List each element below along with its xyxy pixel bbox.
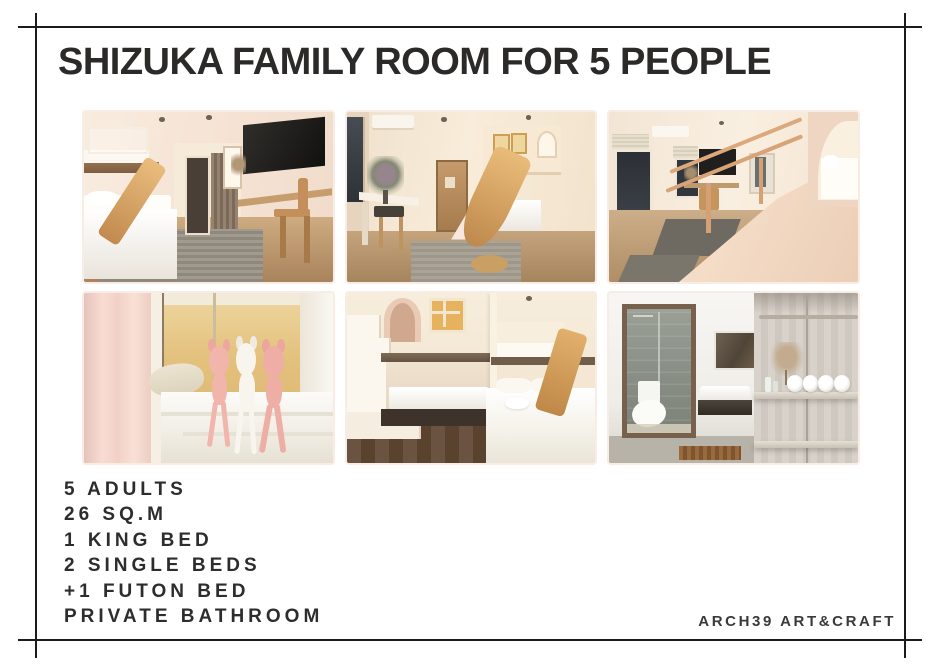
doll-leg	[274, 403, 286, 452]
bunk-plank	[381, 353, 493, 362]
chair	[374, 206, 404, 218]
tv-screen	[243, 116, 325, 174]
bath-mat	[679, 446, 741, 460]
rolled-towel	[803, 375, 819, 391]
bunk-railing	[88, 127, 148, 154]
ceiling-light	[526, 115, 531, 119]
ceiling-light	[159, 117, 165, 121]
pink-curtain	[84, 293, 151, 463]
arch-interior	[390, 303, 415, 342]
frame-line-right	[904, 13, 906, 658]
doll-leg	[206, 401, 218, 448]
toiletry-bottle	[773, 381, 778, 392]
spec-king-bed: 1 KING BED	[64, 528, 323, 553]
window-blind	[612, 134, 649, 149]
photo-loft-view-railing	[609, 112, 858, 282]
pillow	[496, 378, 531, 393]
spec-size: 26 SQ.M	[64, 502, 323, 527]
chair-leg	[399, 217, 403, 249]
ceiling-light	[206, 115, 212, 119]
lower-mattress	[389, 387, 488, 408]
room-specs-list: 5 ADULTS 26 SQ.M 1 KING BED 2 SINGLE BED…	[64, 477, 323, 629]
spec-bathroom: PRIVATE BATHROOM	[64, 604, 323, 629]
ceiling-light	[441, 117, 446, 121]
chair-leg	[280, 216, 285, 259]
shower-rail	[633, 315, 653, 317]
dark-door	[185, 156, 210, 235]
frame-line-left	[35, 13, 37, 658]
page-title: SHIZUKA FAMILY ROOM FOR 5 PEOPLE	[58, 42, 771, 82]
window-mullion	[429, 311, 460, 314]
photo-bunk-interior	[347, 293, 596, 463]
desk	[238, 188, 332, 206]
doll-leg	[220, 401, 230, 448]
toiletry-bottle	[765, 377, 771, 391]
spec-futon-bed: +1 FUTON BED	[64, 579, 323, 604]
photo-bedroom-slide-desk	[84, 112, 333, 282]
brand-credit: ARCH39 ART&CRAFT	[698, 613, 896, 630]
ac-unit	[372, 115, 414, 128]
doll-leg	[234, 402, 245, 455]
spec-adults: 5 ADULTS	[64, 477, 323, 502]
photo-bathroom-shelf	[609, 293, 858, 463]
pillow	[823, 155, 838, 169]
chair-leg	[379, 217, 383, 248]
railing-post	[706, 183, 710, 232]
doll-body	[266, 374, 283, 409]
flower-stem	[785, 370, 787, 385]
photo-grid	[84, 112, 858, 463]
pillow	[86, 191, 117, 205]
desk-leg	[362, 204, 368, 245]
photo-stairs-playhouse-slide	[347, 112, 596, 282]
shelf	[754, 441, 858, 448]
arched-window	[537, 131, 557, 158]
room-flyer-card: SHIZUKA FAMILY ROOM FOR 5 PEOPLE	[0, 0, 940, 668]
rolled-towel	[818, 375, 834, 391]
ac-unit	[652, 126, 689, 136]
chair-leg	[304, 216, 309, 264]
door-sign	[445, 177, 455, 189]
shelf	[754, 392, 858, 399]
doll-leg	[248, 402, 257, 455]
window	[347, 117, 365, 202]
hanger-rail	[759, 315, 858, 319]
spec-single-beds: 2 SINGLE BEDS	[64, 553, 323, 578]
railing-post	[759, 158, 763, 204]
doll-leg	[259, 403, 273, 452]
vase	[383, 190, 388, 204]
window-blind	[673, 146, 698, 158]
rolled-towel	[787, 375, 803, 391]
floor-glow	[627, 424, 691, 433]
paned-window	[429, 298, 466, 333]
dried-flowers	[231, 151, 246, 178]
rolled-towel	[834, 375, 850, 391]
bed-base	[381, 409, 490, 426]
ceiling-light	[719, 121, 724, 125]
frame-line-top	[18, 26, 922, 28]
window	[614, 149, 652, 216]
photo-plush-dolls-bed	[84, 293, 333, 463]
dried-flowers	[771, 342, 803, 376]
vanity-counter	[698, 400, 753, 415]
ceiling-light	[526, 296, 532, 301]
plush-doll-pink	[259, 339, 294, 455]
frame-line-bottom	[18, 639, 922, 641]
